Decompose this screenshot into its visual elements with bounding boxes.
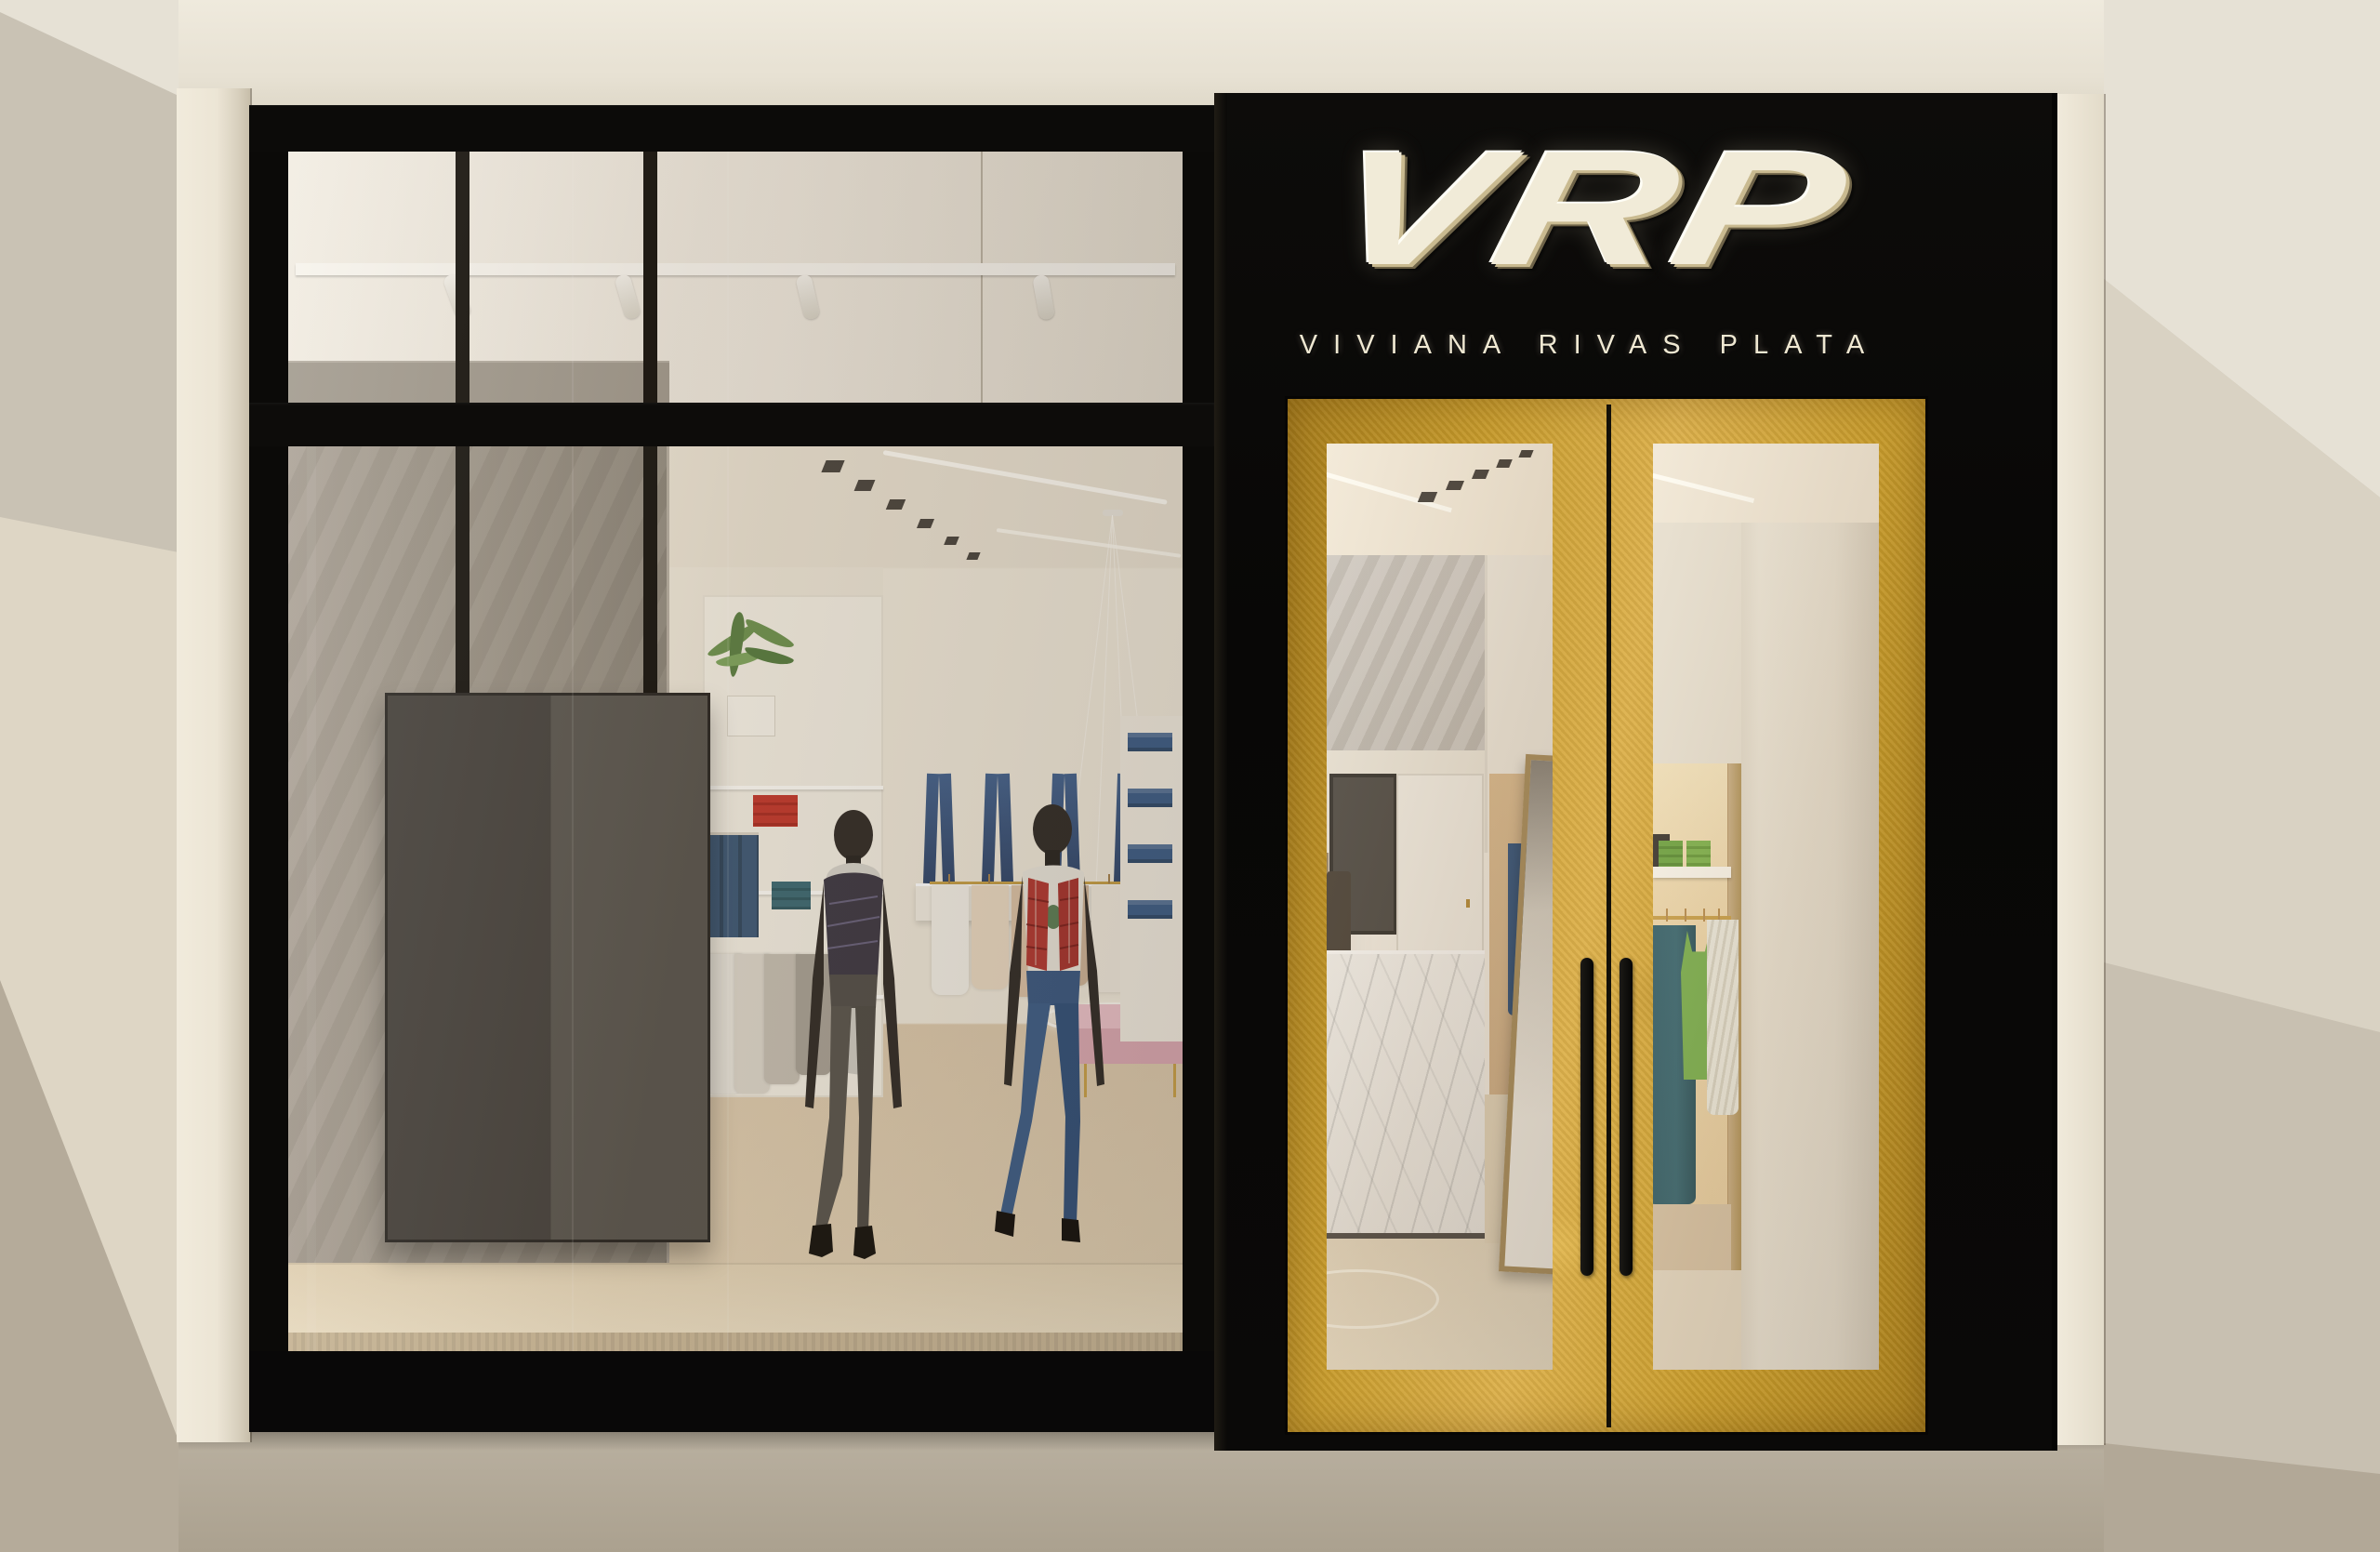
ceiling-vent <box>1518 450 1533 458</box>
interior-ceiling <box>1653 444 1879 523</box>
glass-seam <box>572 446 574 1351</box>
track-spotlight <box>614 273 641 321</box>
ceiling-vent <box>886 499 906 510</box>
entrance-portal: VRP VIVIANA RIVAS PLATA <box>1214 93 2057 1451</box>
display-window <box>288 446 1183 1351</box>
suspended-display-panel <box>385 693 710 1242</box>
window-display-platform <box>288 1263 1183 1333</box>
hanger-hook <box>1666 909 1668 922</box>
shelf <box>703 786 883 789</box>
hanger-hook <box>1685 909 1686 922</box>
panel-hanging-rod <box>456 446 469 693</box>
folded-clothes-green <box>1659 841 1683 867</box>
portal-edge <box>2052 93 2057 1451</box>
interior-ceiling <box>1327 444 1553 555</box>
ceiling-vent <box>821 460 844 472</box>
hanging-white-garment <box>1707 920 1739 1115</box>
mall-ceiling-left <box>0 0 178 130</box>
glass-reflection-streak <box>307 446 316 1351</box>
ceiling-vent <box>854 480 876 491</box>
potted-plant <box>697 584 800 737</box>
interior-partition-top <box>288 361 669 403</box>
folded-denim-stack <box>1128 733 1172 751</box>
marble-cashier-counter <box>1327 950 1485 1239</box>
door-glass-left <box>1327 444 1553 1370</box>
door-meeting-gap <box>1606 405 1611 1427</box>
ceiling-vent <box>1496 459 1513 468</box>
interior-wall <box>1653 499 1741 763</box>
storefront-render: VRP VIVIANA RIVAS PLATA <box>0 0 2380 1552</box>
ceiling-light-strip <box>1653 471 1754 503</box>
platform-front-edge <box>288 1333 1183 1351</box>
folded-clothes-green <box>1686 841 1711 867</box>
brand-subtitle: VIVIANA RIVAS PLATA <box>1292 330 1887 361</box>
ceiling-vent <box>966 552 980 560</box>
door-handle-left <box>1580 958 1593 1276</box>
track-spotlight <box>795 273 820 321</box>
window-frame-top <box>249 105 1214 152</box>
glass-seam <box>572 152 574 403</box>
ceiling-light-strip <box>883 450 1168 505</box>
pilaster-right <box>2057 94 2104 1445</box>
portal-edge <box>1214 93 1227 1451</box>
glass-seam <box>727 152 729 403</box>
hanger-hook <box>1703 909 1705 922</box>
interior-floor <box>1653 1270 1741 1370</box>
door-glass-right <box>1653 444 1879 1370</box>
panel-hanging-rod <box>643 446 657 693</box>
ceiling-vent <box>1418 492 1437 502</box>
track-light-rail <box>296 263 1175 275</box>
track-spotlight <box>1032 274 1055 321</box>
ceiling-vent <box>944 537 959 545</box>
transom-window <box>288 152 1183 403</box>
mannequin-vest-outfit <box>967 805 1139 1270</box>
brand-logo-text: VRP <box>1316 130 1860 288</box>
interior-wood-floor <box>1653 1204 1731 1271</box>
hanger-hook <box>948 874 950 883</box>
folded-denim-stack <box>1128 789 1172 807</box>
black-window-facade <box>249 105 1214 1432</box>
brand-logo: VRP <box>1279 130 1897 288</box>
interior-column <box>1731 444 1879 1370</box>
window-base-panel <box>249 1351 1214 1432</box>
panel-hanging-rod <box>456 152 469 403</box>
window-mullion <box>249 403 1214 446</box>
mannequin-scarf-outfit <box>772 811 939 1262</box>
door-knob <box>1466 899 1470 908</box>
door-handle-right <box>1620 958 1633 1276</box>
interior-wall-corner <box>981 152 983 403</box>
mall-corridor-right-wall <box>2104 0 2380 1552</box>
panel-hanging-rod <box>643 152 657 403</box>
mall-corridor-left-wall <box>0 0 178 1552</box>
ceiling-vent <box>1472 470 1489 479</box>
closet-shelf <box>1653 867 1731 878</box>
plant-pot <box>727 696 775 736</box>
ceiling-vent <box>1446 481 1464 490</box>
glass-seam <box>727 446 729 1351</box>
hanging-jeans <box>705 832 759 937</box>
jean-leg <box>939 774 955 883</box>
plant-leaf <box>726 611 746 677</box>
table-leg <box>1173 1064 1176 1097</box>
ceiling-vent <box>917 519 934 528</box>
pilaster-left <box>177 88 250 1442</box>
